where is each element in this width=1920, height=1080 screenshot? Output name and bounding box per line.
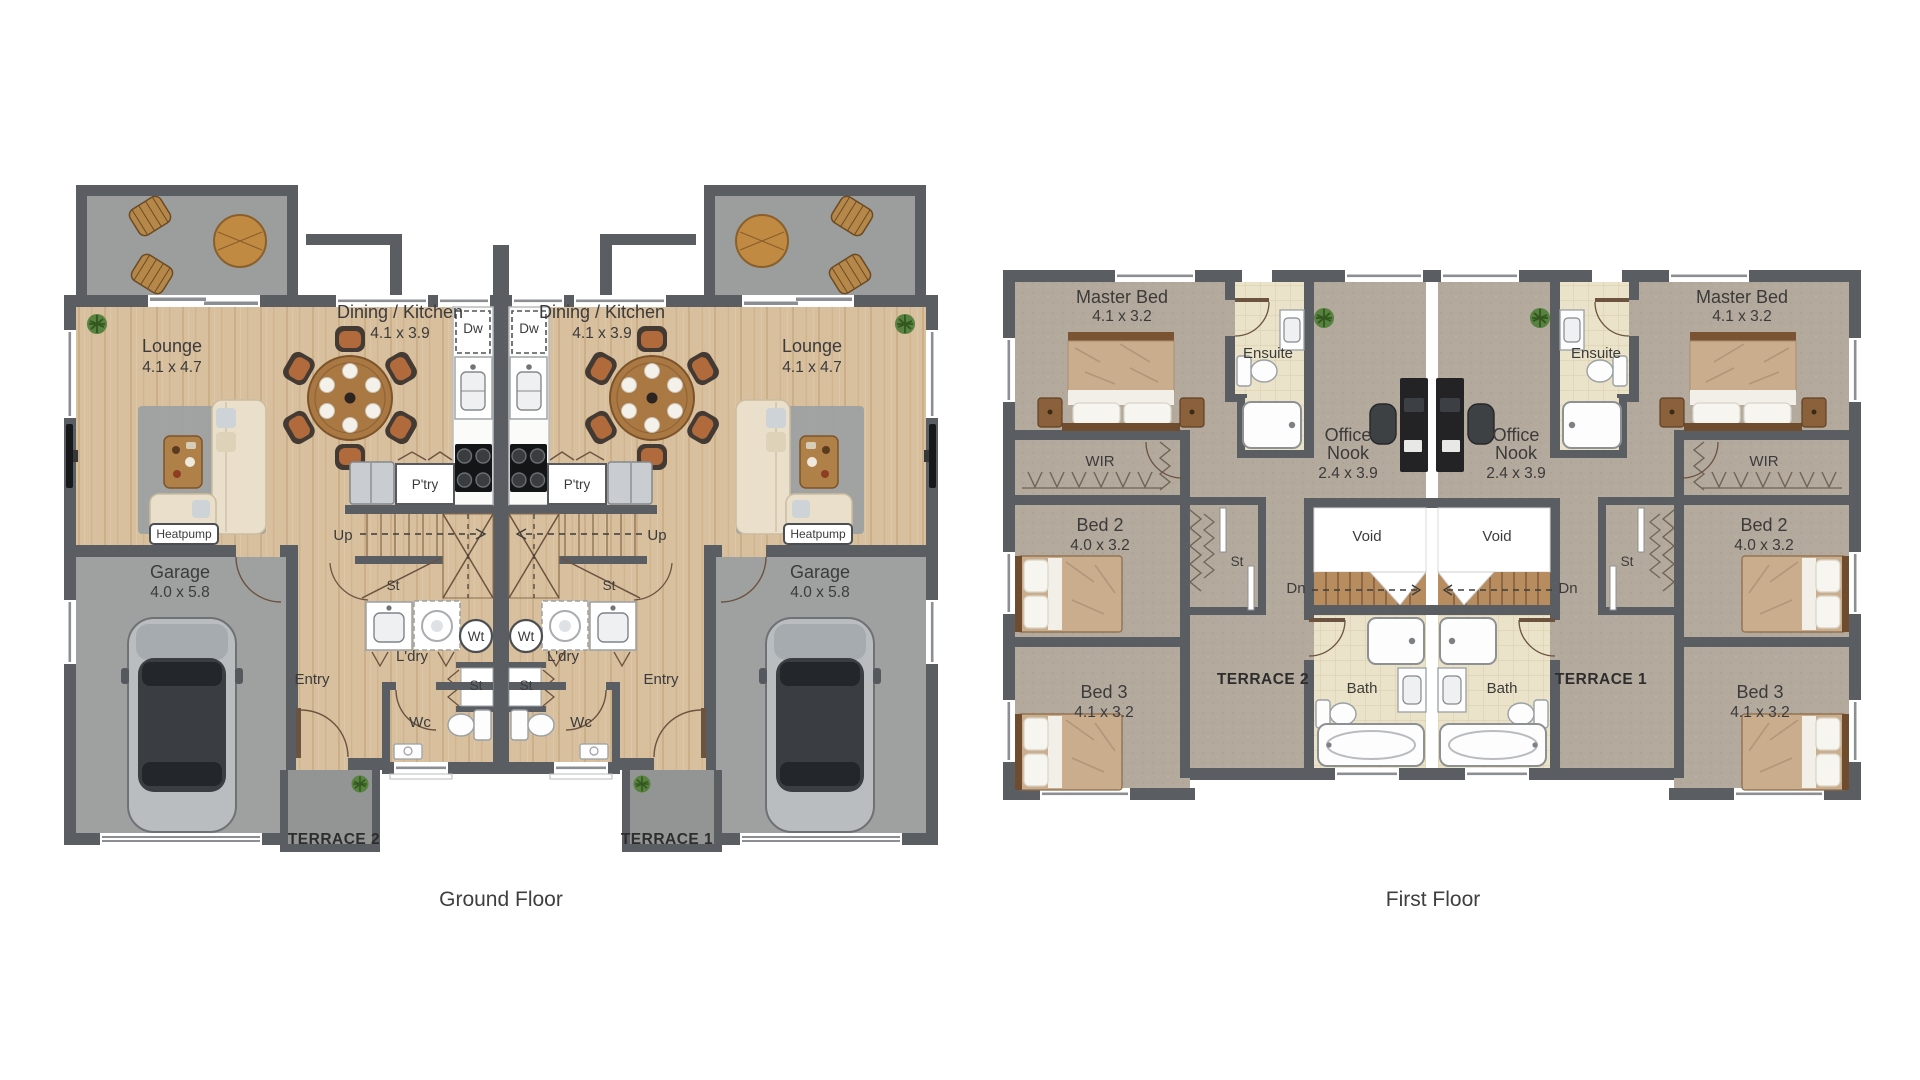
bath-label-right: Bath <box>1487 680 1518 697</box>
dishwasher-label-right: Dw <box>519 321 539 336</box>
ground-unit-right <box>497 185 938 852</box>
dining-dims-left: 4.1 x 3.9 <box>370 325 429 342</box>
lounge-label-left: Lounge <box>142 336 202 356</box>
void-label-right: Void <box>1482 528 1511 545</box>
office-dims-right: 2.4 x 3.9 <box>1486 465 1545 482</box>
ground-floor-plan: Lounge 4.1 x 4.7 Dining / Kitchen 4.1 x … <box>64 185 938 911</box>
master-label-right: Master Bed <box>1696 287 1788 307</box>
wc-label-right: Wc <box>570 714 592 731</box>
garage-label-right: Garage <box>790 562 850 582</box>
linen-label-right: St <box>1621 554 1634 569</box>
up-label-right: Up <box>647 527 666 544</box>
wc-label-left: Wc <box>409 714 431 731</box>
ensuite-label-right: Ensuite <box>1571 345 1621 362</box>
bath-label-left: Bath <box>1347 680 1378 697</box>
wir-label-left: WIR <box>1085 453 1114 470</box>
master-dims-right: 4.1 x 3.2 <box>1712 308 1771 325</box>
office-label2-left: Nook <box>1327 443 1370 463</box>
garage-dims-left: 4.0 x 5.8 <box>150 584 209 601</box>
washtub-label-left: Wt <box>468 629 485 644</box>
office-label1-right: Office <box>1493 425 1540 445</box>
master-dims-left: 4.1 x 3.2 <box>1092 308 1151 325</box>
stair-storage-label-right: St <box>603 578 616 593</box>
bed2-dims-right: 4.0 x 3.2 <box>1734 537 1793 554</box>
linen-label-left: St <box>1231 554 1244 569</box>
master-label-left: Master Bed <box>1076 287 1168 307</box>
dining-label-left: Dining / Kitchen <box>337 302 463 322</box>
lounge-dims-left: 4.1 x 4.7 <box>142 359 201 376</box>
stair-storage-label-left: St <box>387 578 400 593</box>
heatpump-label-left: Heatpump <box>156 527 212 541</box>
bed2-dims-left: 4.0 x 3.2 <box>1070 537 1129 554</box>
garage-dims-right: 4.0 x 5.8 <box>790 584 849 601</box>
entry-label-left: Entry <box>294 671 330 688</box>
wir-label-right: WIR <box>1749 453 1778 470</box>
laundry-label-left: L'dry <box>396 648 429 665</box>
lounge-dims-right: 4.1 x 4.7 <box>782 359 841 376</box>
entry-label-right: Entry <box>643 671 679 688</box>
dining-dims-right: 4.1 x 3.9 <box>572 325 631 342</box>
terrace1-label-first: TERRACE 1 <box>1555 671 1647 688</box>
first-floor-plan: Master Bed 4.1 x 3.2 Ensuite WIR Office … <box>1003 270 1861 911</box>
ensuite-label-left: Ensuite <box>1243 345 1293 362</box>
garage-label-left: Garage <box>150 562 210 582</box>
closet-storage-label-left: St <box>470 678 483 693</box>
bed2-label-right: Bed 2 <box>1740 515 1787 535</box>
laundry-label-right: L'dry <box>547 648 580 665</box>
office-label2-right: Nook <box>1495 443 1538 463</box>
terrace2-label-first: TERRACE 2 <box>1217 671 1309 688</box>
pantry-label-left: P'try <box>412 477 439 492</box>
first-floor-caption: First Floor <box>1386 888 1481 911</box>
bed3-label-left: Bed 3 <box>1080 682 1127 702</box>
dishwasher-label-left: Dw <box>463 321 483 336</box>
bed2-label-left: Bed 2 <box>1076 515 1123 535</box>
bed3-dims-right: 4.1 x 3.2 <box>1730 704 1789 721</box>
dn-label-right: Dn <box>1558 580 1577 597</box>
duplex-floor-plan-page: Lounge 4.1 x 4.7 Dining / Kitchen 4.1 x … <box>0 0 1920 1080</box>
terrace2-label-ground: TERRACE 2 <box>288 831 380 848</box>
washtub-label-right: Wt <box>518 629 535 644</box>
lounge-label-right: Lounge <box>782 336 842 356</box>
ground-floor-caption: Ground Floor <box>439 888 563 911</box>
ground-unit-left <box>64 185 505 852</box>
office-label1-left: Office <box>1325 425 1372 445</box>
heatpump-label-right: Heatpump <box>790 527 846 541</box>
bed3-dims-left: 4.1 x 3.2 <box>1074 704 1133 721</box>
floor-plans-image: Lounge 4.1 x 4.7 Dining / Kitchen 4.1 x … <box>0 0 1920 1080</box>
void-label-left: Void <box>1352 528 1381 545</box>
closet-storage-label-right: St <box>520 678 533 693</box>
dn-label-left: Dn <box>1286 580 1305 597</box>
bed3-label-right: Bed 3 <box>1736 682 1783 702</box>
dining-label-right: Dining / Kitchen <box>539 302 665 322</box>
office-dims-left: 2.4 x 3.9 <box>1318 465 1377 482</box>
up-label-left: Up <box>333 527 352 544</box>
terrace1-label-ground: TERRACE 1 <box>621 831 713 848</box>
pantry-label-right: P'try <box>564 477 591 492</box>
